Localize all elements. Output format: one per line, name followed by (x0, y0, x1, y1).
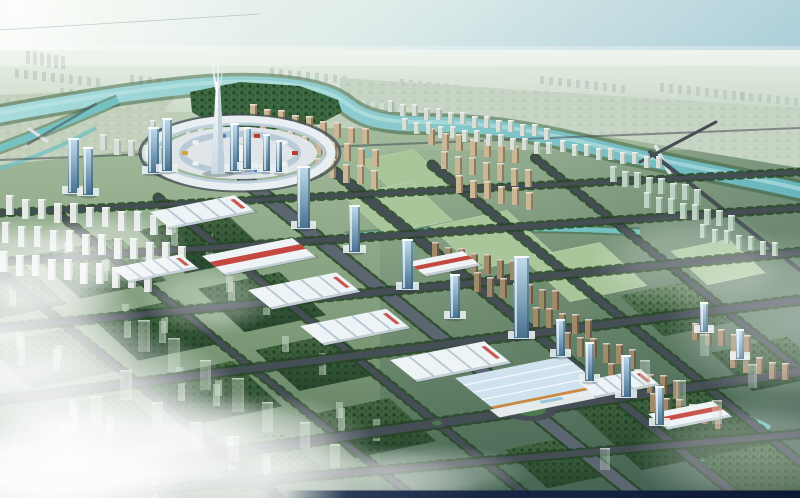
plaza-pavilion (193, 140, 199, 144)
plaza-pavilion (281, 162, 287, 166)
cloud (140, 265, 280, 335)
bottom-bar (285, 491, 800, 498)
plaza-pavilion (182, 151, 188, 155)
ghost-building (676, 380, 686, 406)
cloud (330, 444, 530, 498)
rendering-canvas (0, 0, 800, 498)
aerial-masterplan-rendering (0, 0, 800, 498)
horizon-haze (0, 46, 800, 66)
ghost-building (600, 448, 610, 470)
plaza-pavilion (281, 140, 287, 144)
plaza-pavilion (292, 151, 298, 155)
ghost-building (640, 360, 650, 386)
plaza-pavilion (193, 162, 199, 166)
plaza-pavilion (254, 134, 260, 138)
cloud (590, 212, 790, 312)
